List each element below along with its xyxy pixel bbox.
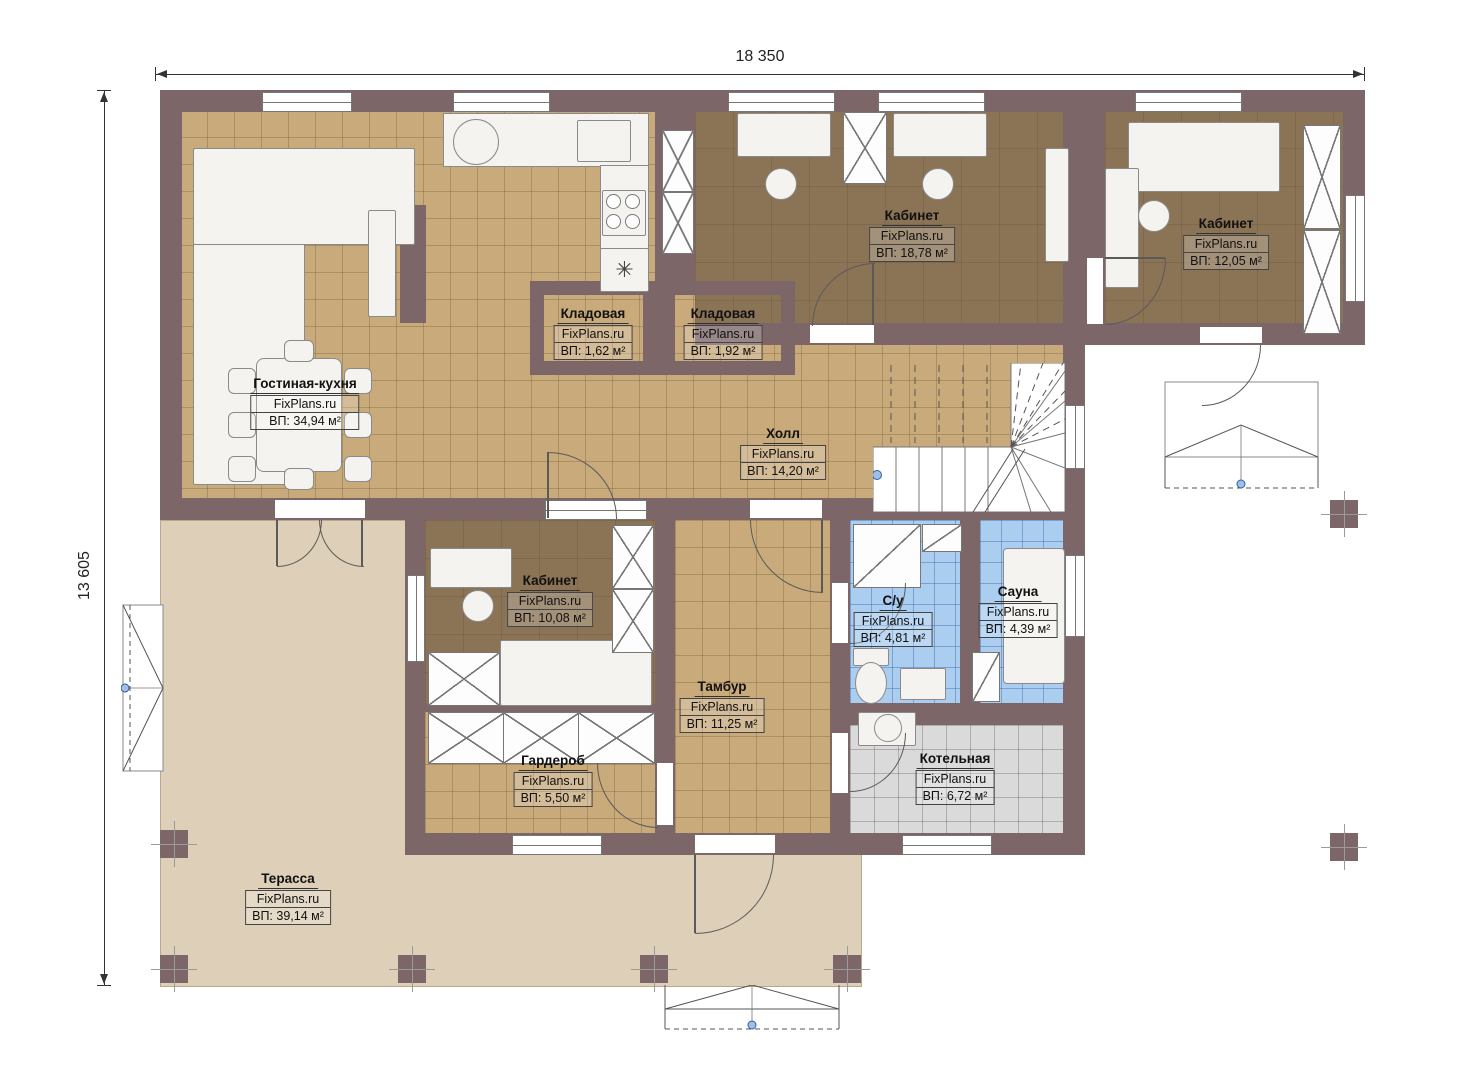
door-leaf	[872, 263, 874, 325]
wardrobe-box	[612, 589, 654, 653]
sofa	[1128, 122, 1280, 192]
room-area: ВП: 12,05 м²	[1184, 253, 1268, 269]
dimension-tick	[97, 985, 111, 986]
room-name: Терасса	[258, 871, 318, 889]
column	[640, 955, 668, 983]
room-area: ВП: 10,08 м²	[508, 610, 592, 626]
dimension-tick	[155, 67, 156, 81]
room-label-sauna: Сауна FixPlans.ru ВП: 4,39 м²	[979, 583, 1058, 638]
room-info-box: FixPlans.ru ВП: 18,78 м²	[869, 227, 955, 263]
window	[1345, 195, 1365, 302]
dimension-label-width: 18 350	[660, 48, 860, 66]
porch-right	[1163, 380, 1323, 495]
wardrobe-box	[1303, 125, 1341, 229]
door-opening	[810, 325, 874, 343]
window	[902, 835, 992, 855]
room-label-boiler: Котельная FixPlans.ru ВП: 6,72 м²	[916, 750, 995, 805]
room-info-box: FixPlans.ru ВП: 12,05 м²	[1183, 235, 1269, 271]
column	[1330, 833, 1358, 861]
door-opening	[750, 500, 822, 518]
wall	[405, 520, 425, 855]
room-area: ВП: 11,25 м²	[681, 716, 764, 732]
steps-left	[121, 603, 167, 775]
room-area: ВП: 14,20 м²	[741, 463, 825, 479]
door-leaf	[821, 520, 823, 592]
dimension-tick	[97, 90, 111, 91]
brand-label: FixPlans.ru	[685, 326, 762, 343]
room-label-vestibule: Тамбур FixPlans.ru ВП: 11,25 м²	[680, 678, 765, 733]
brand-label: FixPlans.ru	[980, 604, 1057, 621]
dimension-label-height: 13 605	[76, 480, 94, 600]
room-label-wardrobe: Гардероб FixPlans.ru ВП: 5,50 м²	[514, 752, 593, 807]
room-info-box: FixPlans.ru ВП: 1,92 м²	[684, 325, 763, 361]
room-name: Кабинет	[882, 208, 943, 226]
room-name: Гардероб	[518, 753, 588, 771]
office-chair	[922, 168, 954, 200]
room-name: Сауна	[995, 584, 1042, 602]
room-info-box: FixPlans.ru ВП: 6,72 м²	[916, 770, 995, 806]
room-label-cabinet-top: Кабинет FixPlans.ru ВП: 18,78 м²	[869, 207, 955, 262]
room-name: Кабинет	[1196, 216, 1257, 234]
wardrobe-box	[612, 525, 654, 589]
kitchen-sink	[577, 120, 631, 162]
room-name: Кабинет	[520, 573, 581, 591]
door-opening	[832, 583, 848, 643]
shaft-box	[662, 192, 694, 254]
room-info-box: FixPlans.ru ВП: 39,14 м²	[245, 890, 331, 926]
room-area: ВП: 6,72 м²	[917, 788, 994, 804]
office-chair	[462, 590, 494, 622]
room-area: ВП: 4,39 м²	[980, 621, 1057, 637]
room-area: ВП: 18,78 м²	[870, 245, 954, 261]
dimension-tick	[1364, 67, 1365, 81]
burner-icon	[606, 194, 621, 209]
room-name: С/у	[879, 593, 906, 611]
door-opening	[1087, 258, 1103, 324]
window	[1065, 555, 1085, 637]
door-leaf	[1105, 257, 1165, 259]
chair	[284, 468, 314, 490]
wall	[160, 90, 182, 520]
brand-label: FixPlans.ru	[1184, 236, 1268, 253]
door-leaf	[276, 520, 278, 566]
room-info-box: FixPlans.ru ВП: 1,62 м²	[554, 325, 633, 361]
door-leaf	[361, 520, 363, 566]
wall	[530, 361, 795, 375]
arrow-up-icon	[100, 92, 108, 102]
brand-label: FixPlans.ru	[246, 891, 330, 908]
room-name: Кладовая	[558, 306, 629, 324]
window	[728, 92, 835, 112]
brand-label: FixPlans.ru	[515, 773, 592, 790]
toilet	[855, 662, 887, 704]
dimension-line-top	[155, 74, 1365, 75]
chair	[344, 456, 372, 482]
chair	[228, 456, 256, 482]
room-info-box: FixPlans.ru ВП: 4,39 м²	[979, 603, 1058, 639]
door-leaf	[694, 855, 696, 933]
room-name: Котельная	[917, 751, 994, 769]
wardrobe-box	[1303, 230, 1341, 334]
room-label-bathroom: С/у FixPlans.ru ВП: 4,81 м²	[854, 592, 933, 647]
cabinet-shelf	[1045, 148, 1069, 262]
brand-label: FixPlans.ru	[555, 326, 632, 343]
arrow-down-icon	[100, 974, 108, 984]
room-info-box: FixPlans.ru ВП: 5,50 м²	[514, 772, 593, 808]
column	[398, 955, 426, 983]
room-area: ВП: 34,94 м²	[251, 413, 358, 429]
brand-label: FixPlans.ru	[917, 771, 994, 788]
door-opening	[275, 500, 365, 518]
sauna-heater	[972, 652, 1000, 702]
room-info-box: FixPlans.ru ВП: 10,08 м²	[507, 592, 593, 628]
shaft-box	[662, 130, 694, 192]
shower	[853, 524, 921, 588]
office-chair	[1138, 200, 1170, 232]
column	[160, 830, 188, 858]
room-label-terrace: Терасса FixPlans.ru ВП: 39,14 м²	[245, 870, 331, 925]
door-opening	[657, 763, 673, 825]
tv-stand	[368, 210, 396, 317]
room-info-box: FixPlans.ru ВП: 11,25 м²	[680, 698, 765, 734]
entrance-steps-bottom	[663, 985, 841, 1035]
room-info-box: FixPlans.ru ВП: 4,81 м²	[854, 612, 933, 648]
brand-label: FixPlans.ru	[681, 699, 764, 716]
burner-icon	[625, 194, 640, 209]
staircase	[873, 363, 1065, 512]
door-opening	[832, 733, 848, 793]
window	[453, 92, 550, 112]
desk	[430, 548, 512, 588]
room-area: ВП: 4,81 м²	[855, 630, 932, 646]
room-area: ВП: 1,62 м²	[555, 343, 632, 359]
desk	[737, 113, 831, 157]
bath-cabinet	[922, 524, 962, 552]
room-name: Холл	[763, 426, 803, 444]
shaft-box	[843, 112, 887, 184]
brand-label: FixPlans.ru	[251, 396, 358, 413]
window	[1065, 405, 1085, 469]
kitchen-sink-round	[453, 119, 499, 165]
chair	[284, 340, 314, 362]
window	[1135, 92, 1242, 112]
desk	[893, 113, 987, 157]
window	[878, 92, 985, 112]
vent-symbol: ✳	[600, 248, 649, 292]
door-opening	[695, 835, 775, 853]
column	[1330, 500, 1358, 528]
brand-label: FixPlans.ru	[741, 446, 825, 463]
bath-cabinet	[900, 668, 946, 700]
burner-icon	[625, 214, 640, 229]
column	[833, 955, 861, 983]
wardrobe-box	[428, 712, 505, 764]
room-label-cabinet-right: Кабинет FixPlans.ru ВП: 12,05 м²	[1183, 215, 1269, 270]
room-area: ВП: 39,14 м²	[246, 908, 330, 924]
office-chair	[765, 168, 797, 200]
arrow-left-icon	[157, 70, 167, 78]
brand-label: FixPlans.ru	[870, 228, 954, 245]
window	[512, 835, 602, 855]
room-name: Кладовая	[688, 306, 759, 324]
room-label-living: Гостиная-кухня FixPlans.ru ВП: 34,94 м²	[250, 375, 359, 430]
room-label-hall: Холл FixPlans.ru ВП: 14,20 м²	[740, 425, 826, 480]
floor-plan: 18 350 13 605	[0, 0, 1474, 1080]
room-name: Гостиная-кухня	[250, 376, 359, 394]
arrow-right-icon	[1353, 70, 1363, 78]
window	[262, 92, 352, 112]
window	[407, 575, 425, 662]
room-label-pantry1: Кладовая FixPlans.ru ВП: 1,62 м²	[554, 305, 633, 360]
room-label-pantry2: Кладовая FixPlans.ru ВП: 1,92 м²	[684, 305, 763, 360]
brand-label: FixPlans.ru	[855, 613, 932, 630]
door-leaf	[547, 452, 549, 518]
room-info-box: FixPlans.ru ВП: 34,94 м²	[250, 395, 359, 431]
wardrobe-box	[428, 652, 500, 706]
burner-icon	[606, 214, 621, 229]
column	[160, 955, 188, 983]
door-opening	[1200, 327, 1262, 343]
room-label-cabinet-mid: Кабинет FixPlans.ru ВП: 10,08 м²	[507, 572, 593, 627]
brand-label: FixPlans.ru	[508, 593, 592, 610]
room-area: ВП: 1,92 м²	[685, 343, 762, 359]
room-area: ВП: 5,50 м²	[515, 790, 592, 806]
dimension-line-left	[104, 90, 105, 986]
room-name: Тамбур	[695, 679, 750, 697]
room-info-box: FixPlans.ru ВП: 14,20 м²	[740, 445, 826, 481]
